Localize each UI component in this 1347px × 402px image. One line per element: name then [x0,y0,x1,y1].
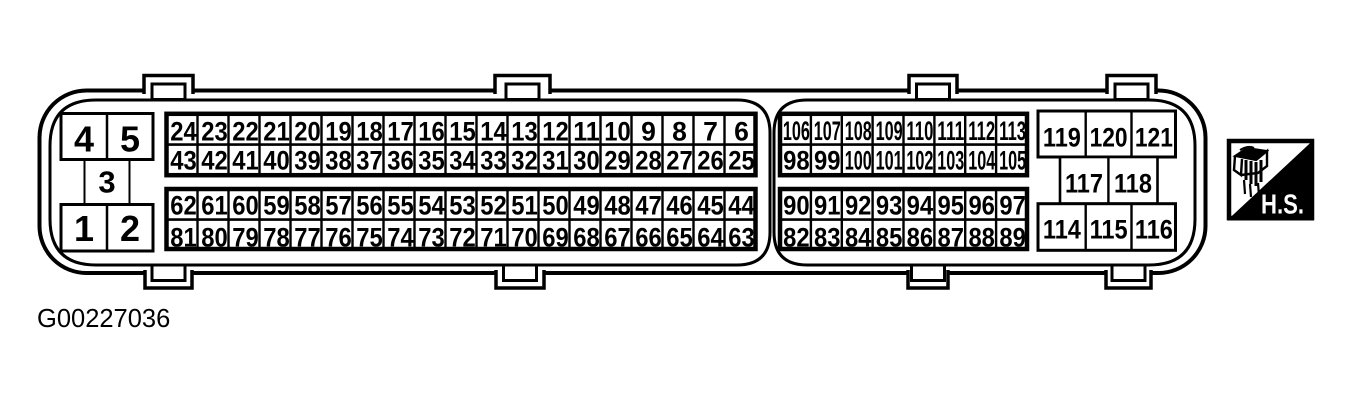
svg-text:49: 49 [573,191,600,221]
svg-text:47: 47 [635,191,662,221]
svg-text:107: 107 [814,116,841,146]
svg-text:14: 14 [480,117,507,147]
svg-text:58: 58 [294,191,321,221]
svg-text:72: 72 [449,223,476,253]
svg-text:106: 106 [783,116,810,146]
svg-text:84: 84 [845,223,872,253]
svg-text:4: 4 [74,119,94,160]
svg-text:61: 61 [201,191,228,221]
svg-text:95: 95 [938,191,965,221]
svg-text:42: 42 [201,145,228,175]
svg-text:16: 16 [418,117,445,147]
svg-text:93: 93 [876,191,903,221]
svg-text:90: 90 [783,191,810,221]
svg-text:74: 74 [387,223,414,253]
svg-text:71: 71 [480,223,507,253]
svg-text:11: 11 [573,117,600,147]
svg-text:66: 66 [635,223,662,253]
svg-text:27: 27 [666,145,693,175]
svg-text:104: 104 [968,145,995,175]
svg-text:7: 7 [703,117,718,147]
svg-text:2: 2 [120,208,140,249]
svg-text:69: 69 [542,223,569,253]
svg-text:51: 51 [511,191,538,221]
svg-text:92: 92 [845,191,872,221]
svg-text:114: 114 [1043,215,1081,245]
svg-text:44: 44 [728,191,755,221]
svg-text:35: 35 [418,145,445,175]
svg-text:89: 89 [999,223,1026,253]
svg-text:24: 24 [170,117,197,147]
svg-text:103: 103 [937,145,964,175]
svg-text:17: 17 [387,117,414,147]
svg-text:73: 73 [418,223,445,253]
svg-text:78: 78 [263,223,290,253]
svg-text:79: 79 [232,223,259,253]
svg-text:119: 119 [1043,123,1081,153]
svg-text:100: 100 [845,145,872,175]
svg-text:43: 43 [170,145,197,175]
svg-text:94: 94 [907,191,934,221]
svg-text:25: 25 [728,145,755,175]
svg-text:53: 53 [449,191,476,221]
svg-text:19: 19 [325,117,352,147]
svg-text:88: 88 [968,223,995,253]
svg-text:G00227036: G00227036 [37,305,170,333]
svg-text:86: 86 [907,223,934,253]
svg-text:57: 57 [325,191,352,221]
svg-text:108: 108 [845,116,872,146]
svg-text:6: 6 [734,117,749,147]
svg-text:32: 32 [511,145,538,175]
svg-text:85: 85 [876,223,903,253]
svg-text:3: 3 [98,165,115,200]
svg-text:65: 65 [666,223,693,253]
svg-text:46: 46 [666,191,693,221]
svg-text:12: 12 [542,117,569,147]
svg-text:91: 91 [814,191,841,221]
svg-text:117: 117 [1065,169,1103,199]
svg-text:28: 28 [635,145,662,175]
svg-text:111: 111 [937,116,964,146]
svg-text:64: 64 [697,223,724,253]
svg-text:23: 23 [201,117,228,147]
svg-text:75: 75 [356,223,383,253]
svg-text:110: 110 [906,116,933,146]
svg-text:1: 1 [74,208,94,249]
svg-text:105: 105 [999,145,1026,175]
svg-text:40: 40 [263,145,290,175]
svg-text:67: 67 [604,223,631,253]
svg-text:30: 30 [573,145,600,175]
svg-text:81: 81 [170,223,197,253]
svg-text:83: 83 [814,223,841,253]
svg-text:18: 18 [356,117,383,147]
svg-text:48: 48 [604,191,631,221]
svg-text:97: 97 [999,191,1026,221]
svg-text:96: 96 [968,191,995,221]
svg-text:8: 8 [672,117,687,147]
svg-text:39: 39 [294,145,321,175]
svg-text:31: 31 [542,145,569,175]
svg-text:26: 26 [697,145,724,175]
svg-text:62: 62 [170,191,197,221]
svg-text:22: 22 [232,117,259,147]
svg-text:41: 41 [232,145,259,175]
svg-text:120: 120 [1090,123,1128,153]
svg-text:36: 36 [387,145,414,175]
svg-text:50: 50 [542,191,569,221]
svg-text:15: 15 [449,117,476,147]
svg-text:99: 99 [814,145,841,175]
svg-text:59: 59 [263,191,290,221]
svg-text:115: 115 [1090,215,1128,245]
svg-text:33: 33 [480,145,507,175]
svg-text:109: 109 [876,116,903,146]
svg-text:101: 101 [876,145,903,175]
svg-text:63: 63 [728,223,755,253]
svg-text:76: 76 [325,223,352,253]
svg-text:21: 21 [263,117,290,147]
svg-text:77: 77 [294,223,321,253]
svg-text:80: 80 [201,223,228,253]
svg-text:38: 38 [325,145,352,175]
svg-text:98: 98 [783,145,810,175]
svg-text:52: 52 [480,191,507,221]
svg-text:H.S.: H.S. [1261,189,1304,220]
svg-text:34: 34 [449,145,476,175]
svg-text:13: 13 [511,117,538,147]
svg-text:56: 56 [356,191,383,221]
svg-text:118: 118 [1114,169,1152,199]
svg-text:102: 102 [906,145,933,175]
svg-text:87: 87 [938,223,965,253]
svg-text:116: 116 [1135,215,1173,245]
svg-text:82: 82 [783,223,810,253]
svg-text:70: 70 [511,223,538,253]
svg-text:55: 55 [387,191,414,221]
svg-text:37: 37 [356,145,383,175]
svg-text:112: 112 [968,116,995,146]
svg-text:9: 9 [641,117,656,147]
svg-text:54: 54 [418,191,445,221]
svg-text:29: 29 [604,145,631,175]
svg-text:5: 5 [120,119,140,160]
svg-text:121: 121 [1135,123,1173,153]
svg-text:10: 10 [604,117,631,147]
svg-text:60: 60 [232,191,259,221]
svg-text:68: 68 [573,223,600,253]
svg-text:20: 20 [294,117,321,147]
svg-text:113: 113 [999,116,1026,146]
svg-text:45: 45 [697,191,724,221]
